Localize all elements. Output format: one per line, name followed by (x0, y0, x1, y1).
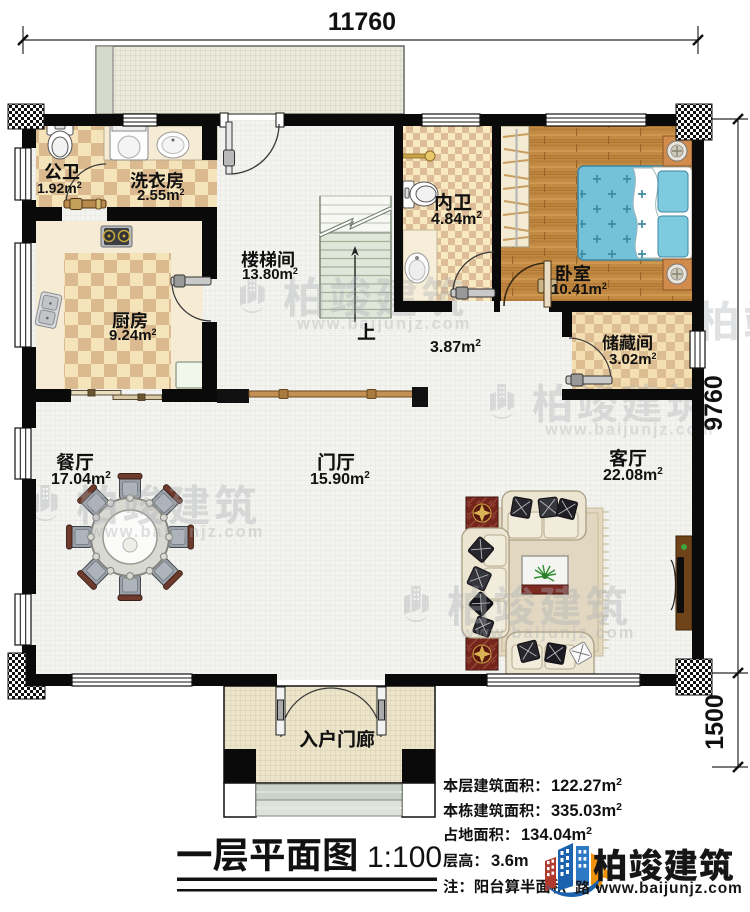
svg-text:www.baijunjz.com: www.baijunjz.com (595, 880, 743, 897)
svg-text:1.92m2: 1.92m2 (37, 180, 82, 196)
svg-text:www.baijunjz.com: www.baijunjz.com (544, 421, 714, 438)
svg-text:1500: 1500 (701, 694, 729, 750)
svg-text:11760: 11760 (328, 8, 396, 36)
svg-text:134.04m2: 134.04m2 (521, 825, 592, 844)
svg-text:3.87m2: 3.87m2 (430, 338, 481, 356)
svg-text:9.24m2: 9.24m2 (109, 327, 157, 344)
svg-text:335.03m2: 335.03m2 (551, 801, 622, 820)
svg-text:2.55m2: 2.55m2 (137, 187, 185, 204)
svg-text:15.90m2: 15.90m2 (310, 470, 370, 488)
svg-text:3.6m: 3.6m (491, 852, 529, 870)
svg-text:www.baijunjz.com: www.baijunjz.com (296, 315, 471, 333)
svg-text:3.02m2: 3.02m2 (609, 351, 657, 368)
svg-text:10.41m2: 10.41m2 (551, 281, 607, 298)
svg-text:www.baijunjz.com: www.baijunjz.com (460, 624, 635, 642)
svg-text:1:100: 1:100 (367, 841, 442, 874)
svg-text:4.84m2: 4.84m2 (431, 210, 482, 228)
svg-text:www.baijunjz.com: www.baijunjz.com (89, 523, 264, 541)
svg-text:17.04m2: 17.04m2 (51, 470, 111, 488)
svg-text:22.08m2: 22.08m2 (603, 466, 663, 484)
svg-text:122.27m2: 122.27m2 (551, 776, 622, 795)
svg-text:13.80m2: 13.80m2 (242, 266, 298, 283)
